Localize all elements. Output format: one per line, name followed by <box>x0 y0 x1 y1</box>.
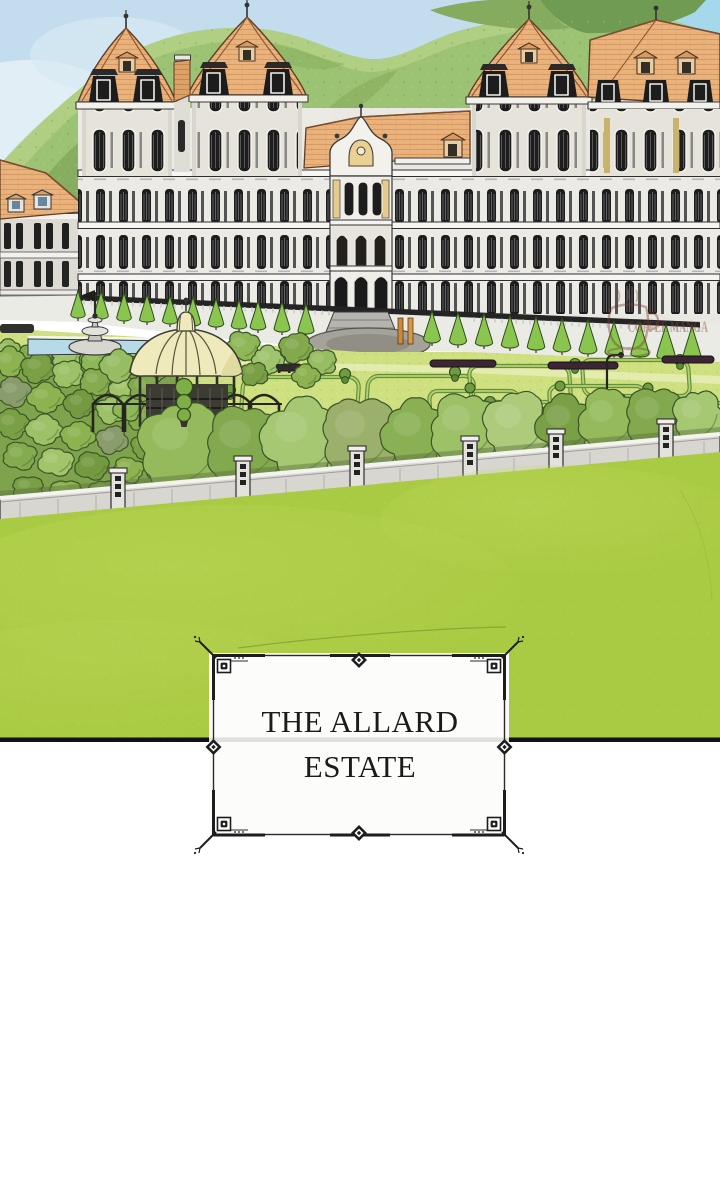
svg-text:THE ALLARD: THE ALLARD <box>261 704 458 739</box>
svg-text:ESTATE: ESTATE <box>304 749 416 784</box>
svg-text:COFFEE MANGA: COFFEE MANGA <box>628 319 708 336</box>
